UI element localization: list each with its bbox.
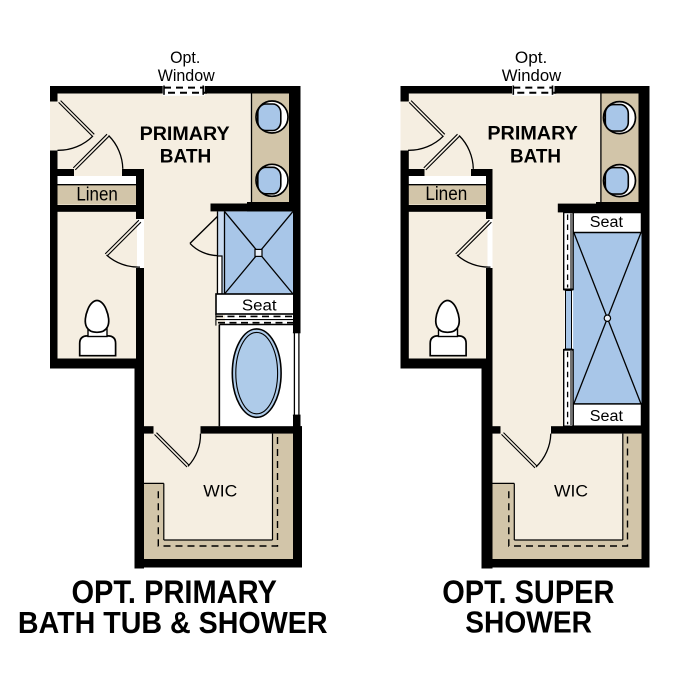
svg-text:Window: Window bbox=[158, 66, 216, 85]
svg-text:BATH TUB & SHOWER: BATH TUB & SHOWER bbox=[18, 606, 328, 640]
svg-text:Seat: Seat bbox=[590, 214, 624, 231]
svg-text:Opt.: Opt. bbox=[170, 48, 200, 67]
svg-text:WIC: WIC bbox=[554, 483, 588, 501]
svg-text:BATH: BATH bbox=[510, 147, 561, 168]
svg-text:Window: Window bbox=[502, 66, 562, 85]
svg-text:BATH: BATH bbox=[160, 147, 212, 168]
svg-text:Seat: Seat bbox=[590, 408, 624, 425]
svg-text:SHOWER: SHOWER bbox=[465, 606, 592, 640]
svg-text:OPT. PRIMARY: OPT. PRIMARY bbox=[71, 574, 277, 610]
svg-text:PRIMARY: PRIMARY bbox=[487, 124, 578, 145]
svg-text:Seat: Seat bbox=[242, 297, 278, 314]
svg-text:WIC: WIC bbox=[203, 483, 237, 501]
svg-text:Opt.: Opt. bbox=[515, 48, 547, 67]
svg-text:PRIMARY: PRIMARY bbox=[140, 124, 230, 145]
svg-text:Linen: Linen bbox=[76, 184, 118, 205]
svg-text:Linen: Linen bbox=[425, 184, 467, 205]
